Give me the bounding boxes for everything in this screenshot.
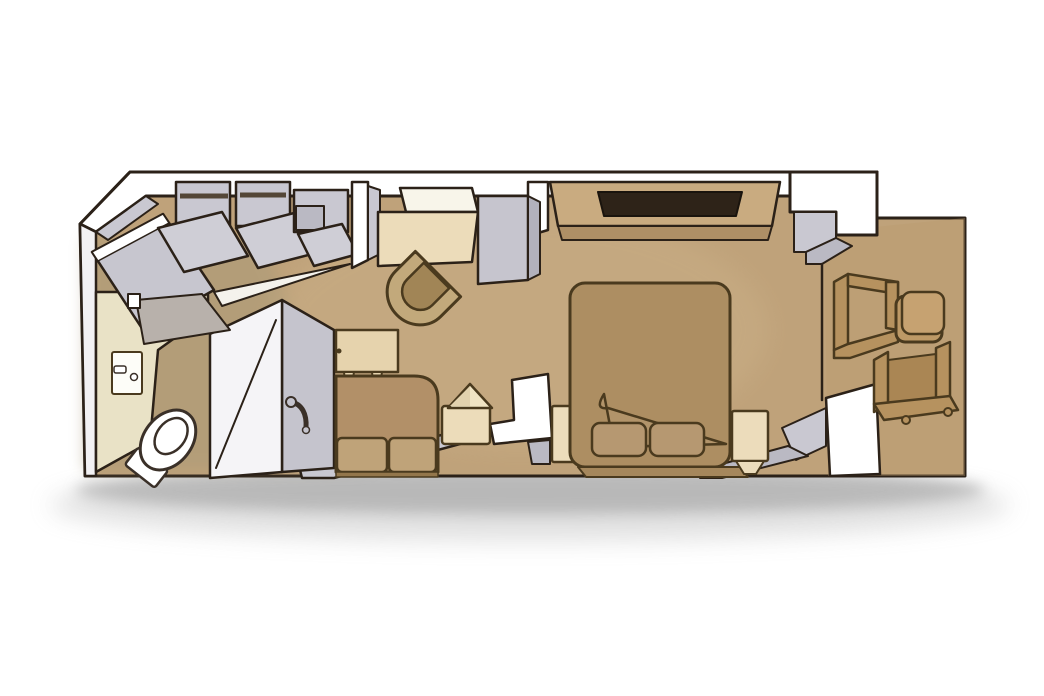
console-table-knob (337, 349, 342, 354)
sofa-base (336, 472, 438, 477)
desk-side-wall (352, 182, 368, 268)
dresser-front (558, 226, 772, 240)
dresser (550, 182, 780, 240)
bed-base (578, 467, 748, 477)
console-table (336, 330, 398, 372)
nightstand-right (732, 411, 768, 461)
wardrobe (158, 182, 358, 272)
pillow-left (592, 423, 646, 456)
minibar-cabinet-side (528, 196, 540, 280)
balcony-table (896, 292, 944, 342)
stateroom-floorplan-image (0, 0, 1044, 696)
balcony-chair-upper-back (834, 274, 848, 350)
desk (378, 212, 478, 266)
bathroom-door-hinge (128, 294, 140, 308)
balcony-chair-lower-leg-left (902, 416, 910, 424)
shower-head (303, 427, 310, 434)
sofa-cushion-right (389, 438, 436, 472)
sofa-cushion-left (337, 438, 387, 472)
balcony-chair-lower-leg-right (944, 408, 952, 416)
left-wall (80, 224, 96, 476)
balcony-partition-bottom (826, 384, 880, 476)
shower-mixer (286, 397, 296, 407)
pillow-right (650, 423, 704, 456)
balcony-table-top (902, 292, 944, 334)
storage-cabinet-safe (296, 206, 324, 230)
bottom-wall-stub-foot (528, 440, 550, 464)
tv-screen (598, 192, 742, 216)
minibar-cabinet (478, 196, 528, 284)
vanity-knob (131, 374, 138, 381)
lamp-table (442, 406, 490, 444)
desk-mirror (400, 188, 478, 212)
vanity-handle (114, 366, 126, 373)
shower-side-wall (282, 300, 334, 472)
floorplan-page (0, 0, 1044, 696)
